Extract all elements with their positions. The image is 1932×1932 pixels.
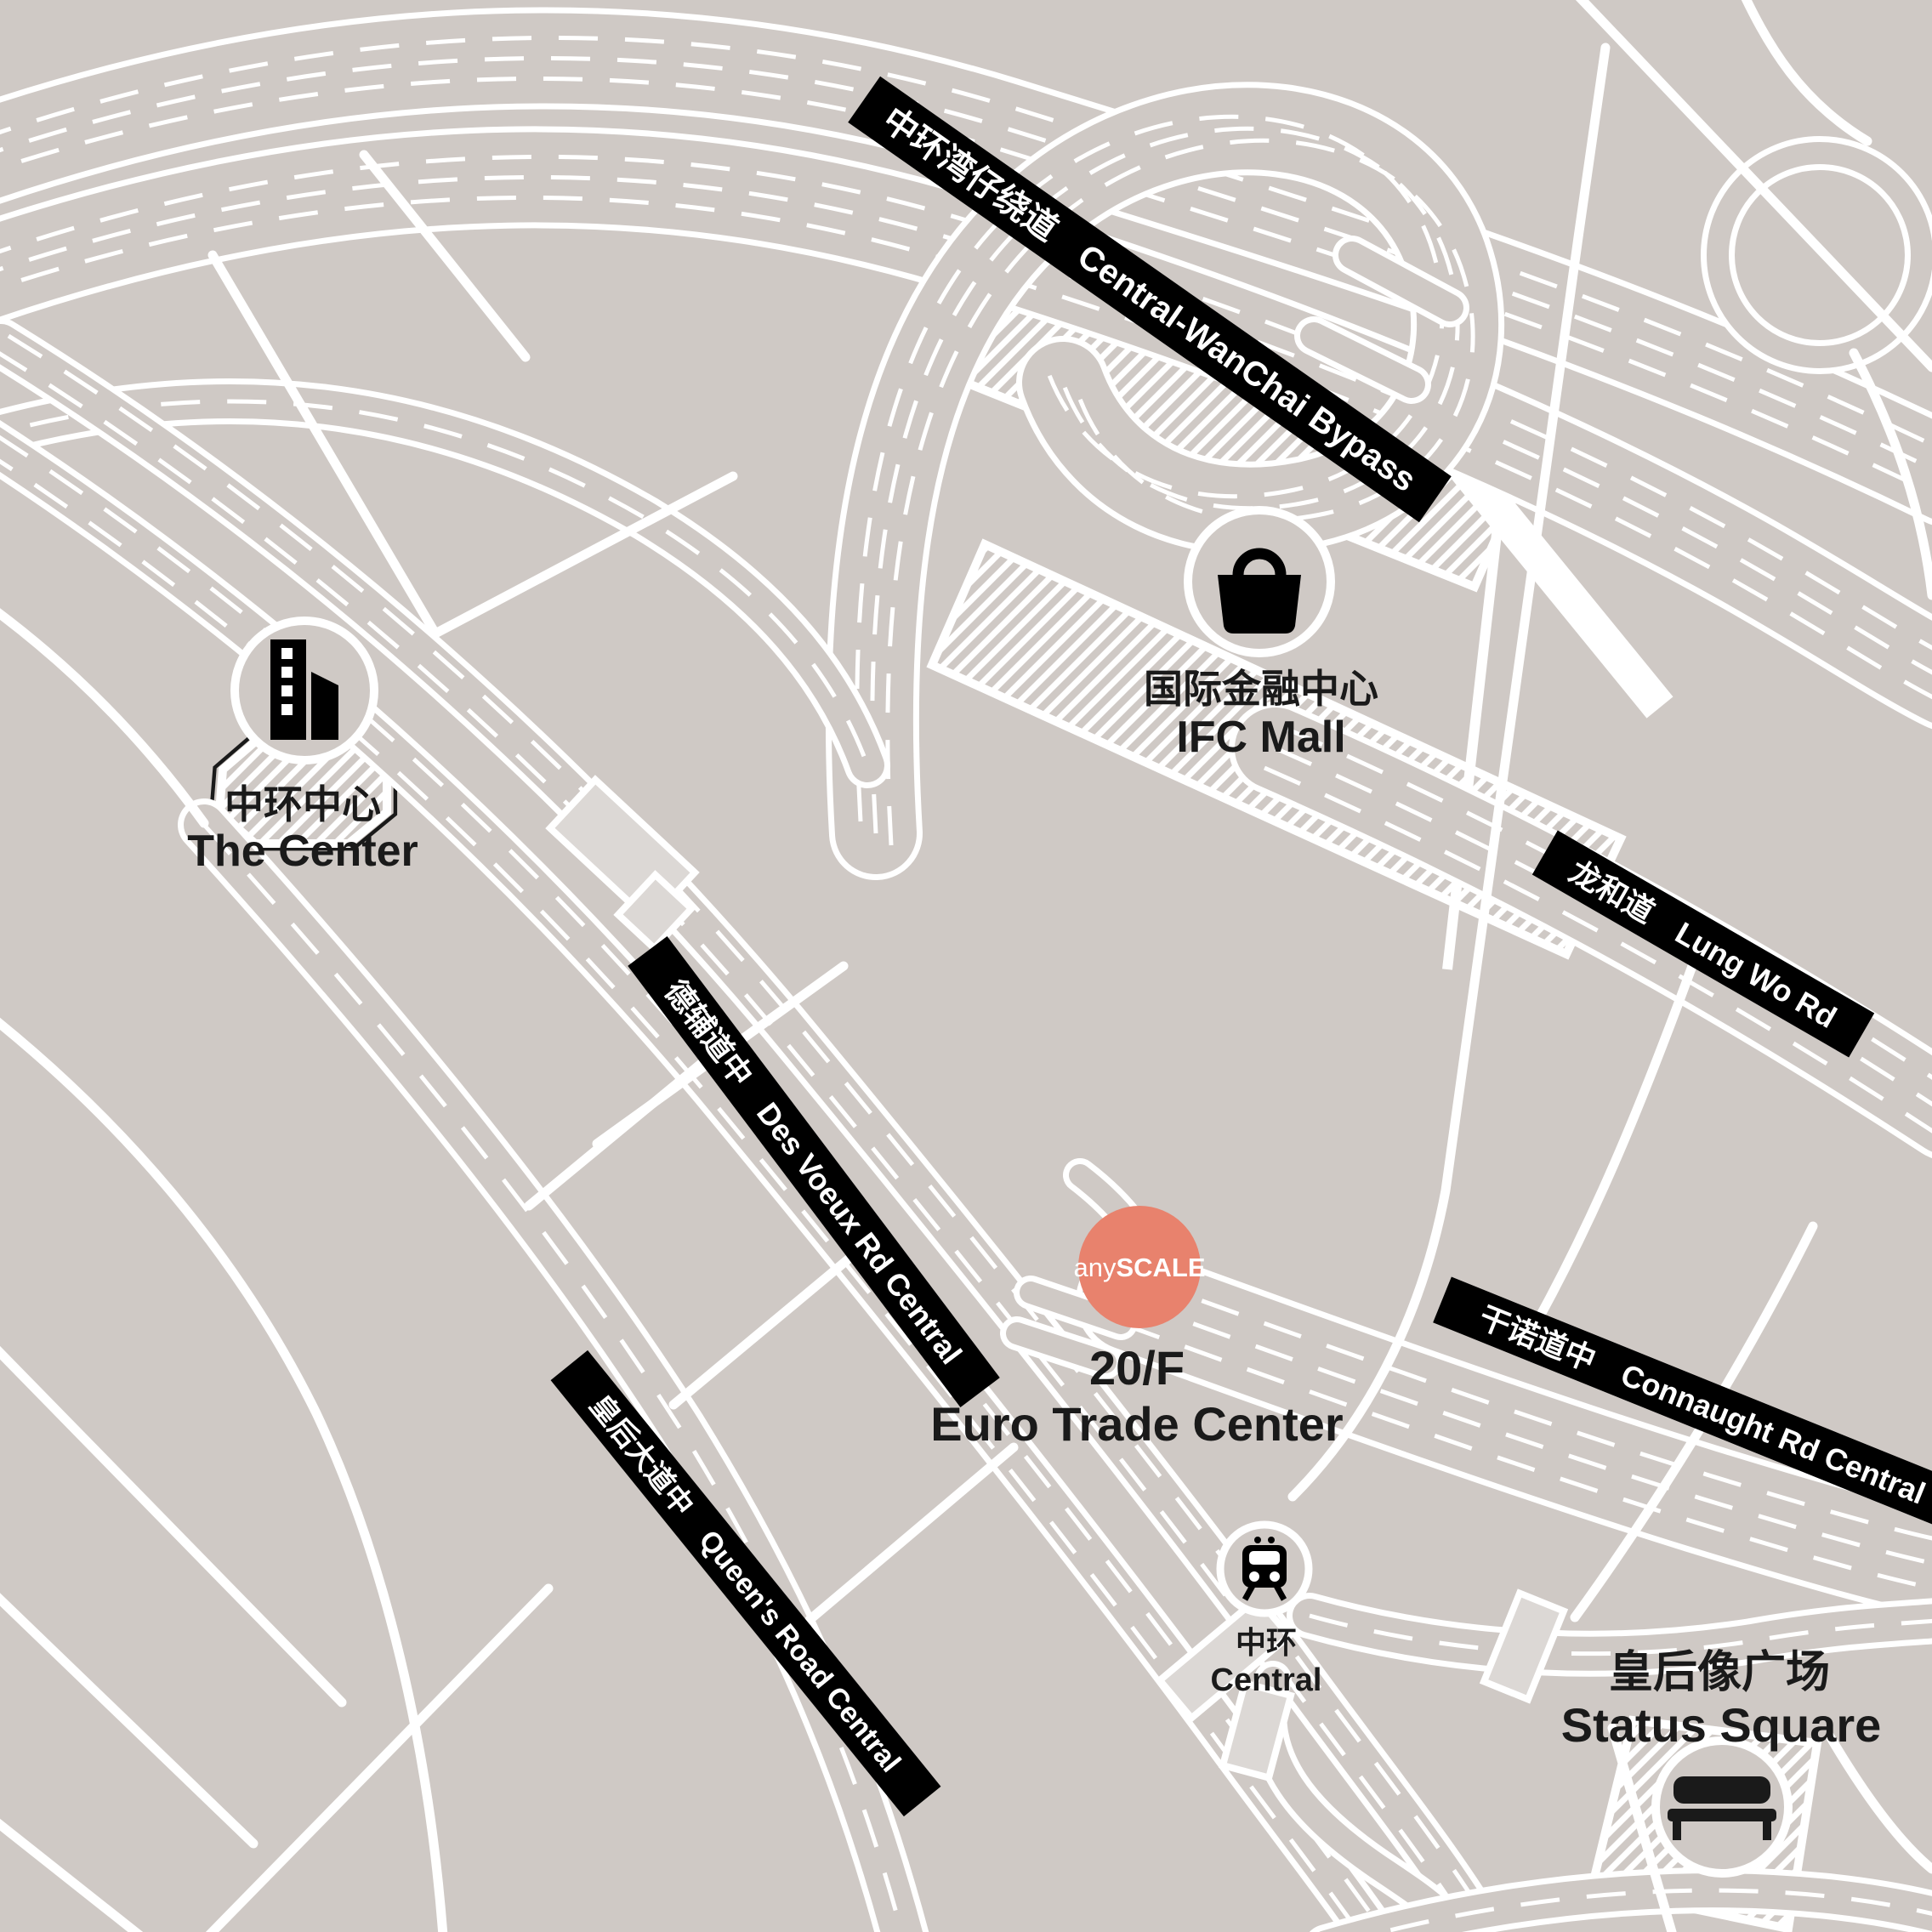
- central-station-label-en: Central: [1211, 1662, 1322, 1698]
- ifc-mall-label-en: IFC Mall: [1176, 713, 1345, 762]
- map-canvas: 中环中心 The Center 国际金融中心 IFC Mall 中环 Centr…: [0, 0, 1932, 1932]
- central-station-label-zh: 中环: [1236, 1625, 1297, 1660]
- anyscale-brand-bold: SCALE: [1116, 1253, 1205, 1282]
- status-square-label-zh: 皇后像广场: [1609, 1648, 1830, 1697]
- the-center-label-zh: 中环中心: [224, 782, 381, 827]
- map-stage: 中环中心 The Center 国际金融中心 IFC Mall 中环 Centr…: [0, 0, 1932, 1932]
- ifc-mall-label-zh: 国际金融中心: [1144, 667, 1378, 711]
- anyscale-floor-label: 20/F: [1089, 1341, 1185, 1395]
- anyscale-building-label: Euro Trade Center: [930, 1397, 1343, 1451]
- the-center-label-en: The Center: [187, 827, 418, 876]
- status-square-label-en: Status Square: [1561, 1698, 1882, 1752]
- svg-text:anySCALE: anySCALE: [1073, 1253, 1205, 1282]
- anyscale-brand-light: any: [1073, 1253, 1116, 1282]
